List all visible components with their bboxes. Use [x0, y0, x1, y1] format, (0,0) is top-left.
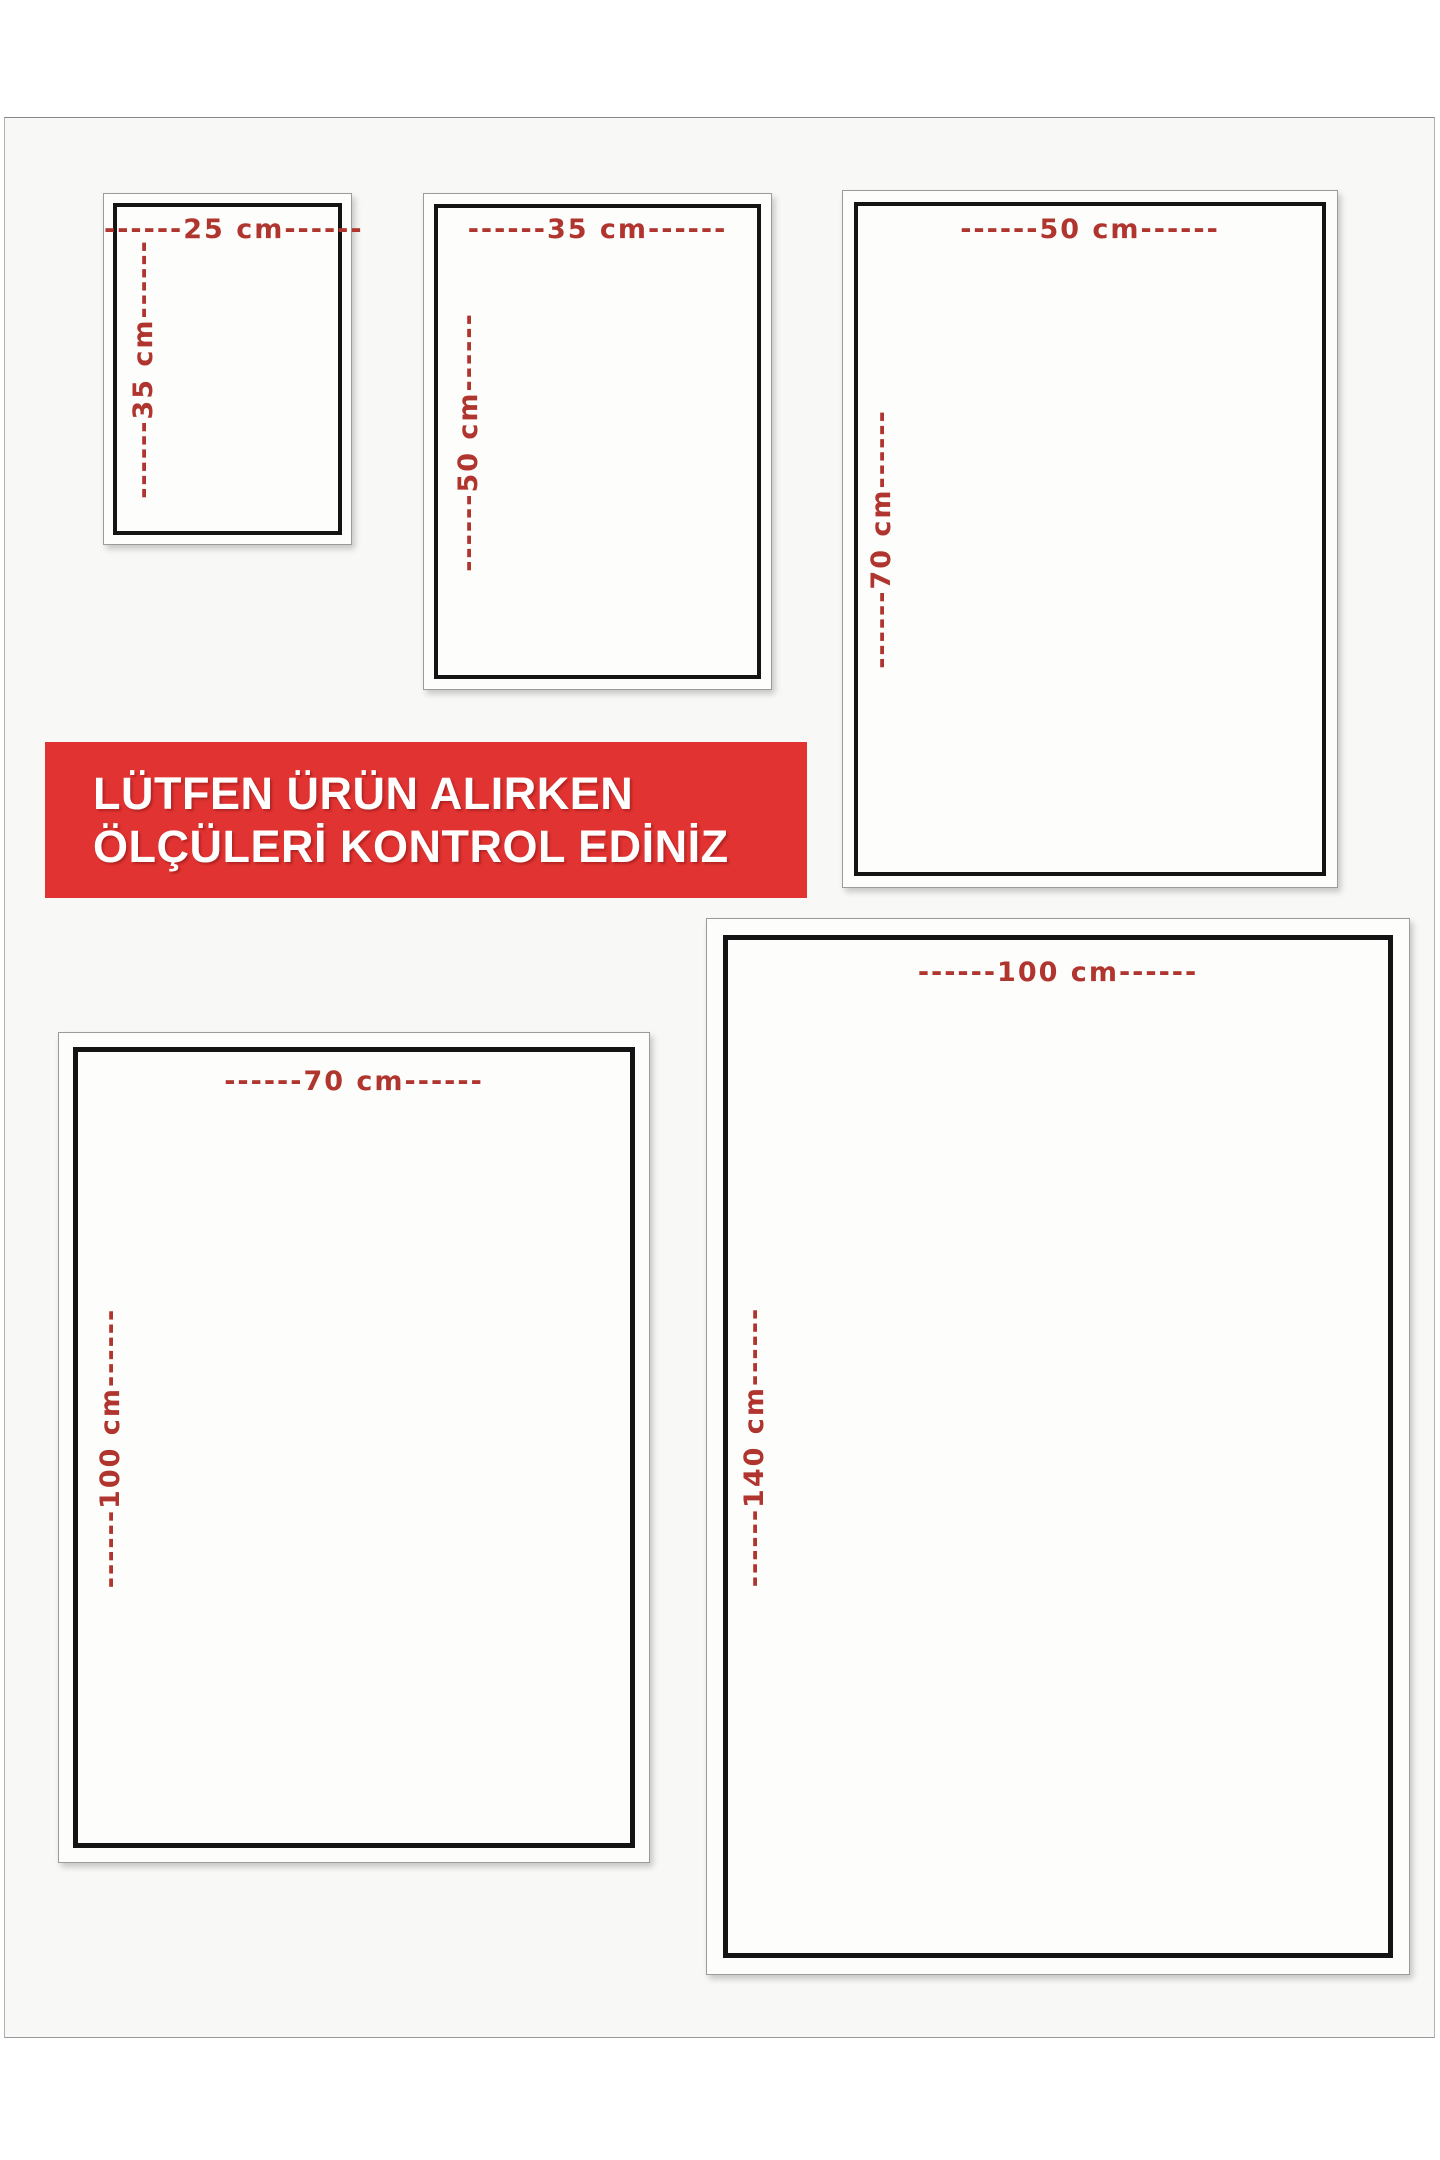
size-frame-70x100 [73, 1047, 635, 1848]
width-dimension-label: ------70 cm------ [59, 1066, 649, 1097]
size-frame-100x140 [723, 935, 1393, 1958]
width-dimension-label: ------35 cm------ [424, 214, 771, 245]
height-dimension-label: ------70 cm------ [866, 409, 897, 669]
size-diagram-35x50: ------35 cm------ ------50 cm------ [423, 193, 772, 690]
width-dimension-label: ------50 cm------ [843, 214, 1337, 245]
height-dimension-label: ------140 cm------ [739, 1306, 770, 1586]
notice-banner: LÜTFEN ÜRÜN ALIRKEN ÖLÇÜLERİ KONTROL EDİ… [45, 742, 807, 898]
size-diagram-50x70: ------50 cm------ ------70 cm------ [842, 190, 1338, 888]
notice-line-1: LÜTFEN ÜRÜN ALIRKEN [93, 768, 807, 821]
notice-line-2: ÖLÇÜLERİ KONTROL EDİNİZ [93, 821, 807, 874]
width-dimension-label: ------100 cm------ [707, 957, 1409, 988]
height-dimension-label: ------50 cm------ [453, 312, 484, 572]
height-dimension-label: ------35 cm------ [128, 239, 159, 499]
height-dimension-label: ------100 cm------ [95, 1307, 126, 1587]
size-diagram-70x100: ------70 cm------ ------100 cm------ [58, 1032, 650, 1863]
size-diagram-25x35: ------25 cm------ ------35 cm------ [103, 193, 352, 545]
size-diagram-100x140: ------100 cm------ ------140 cm------ [706, 918, 1410, 1975]
size-frame-50x70 [854, 202, 1326, 876]
